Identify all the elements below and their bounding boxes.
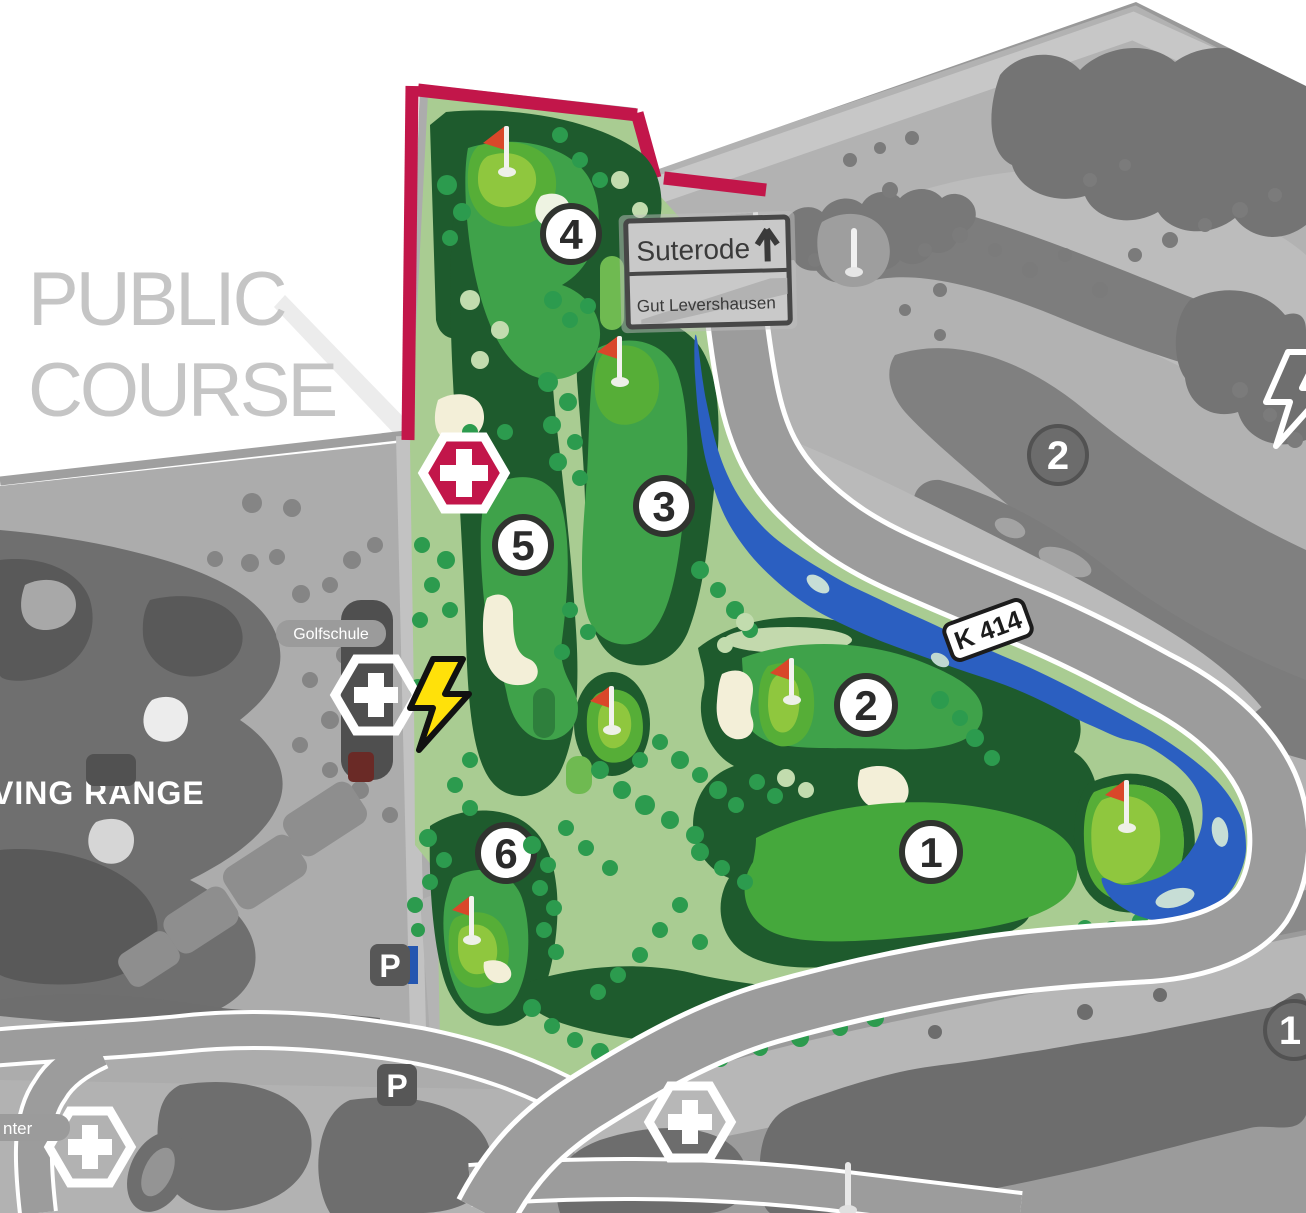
svg-text:P: P [386, 1068, 407, 1104]
svg-text:6: 6 [494, 830, 517, 877]
svg-text:COURSE: COURSE [28, 348, 335, 433]
svg-text:1: 1 [919, 829, 942, 876]
svg-text:2: 2 [854, 682, 877, 729]
svg-text:Suterode: Suterode [636, 233, 750, 267]
svg-text:P: P [379, 948, 400, 984]
svg-text:1: 1 [1279, 1009, 1301, 1053]
svg-text:Gut Levershausen: Gut Levershausen [637, 293, 776, 316]
svg-text:3: 3 [652, 483, 675, 530]
svg-text:4: 4 [559, 211, 583, 258]
svg-text:5: 5 [511, 522, 534, 569]
svg-text:Golfschule: Golfschule [293, 626, 369, 643]
svg-text:2: 2 [1047, 434, 1069, 478]
svg-text:nter: nter [3, 1119, 33, 1138]
svg-text:PUBLIC: PUBLIC [28, 257, 285, 342]
